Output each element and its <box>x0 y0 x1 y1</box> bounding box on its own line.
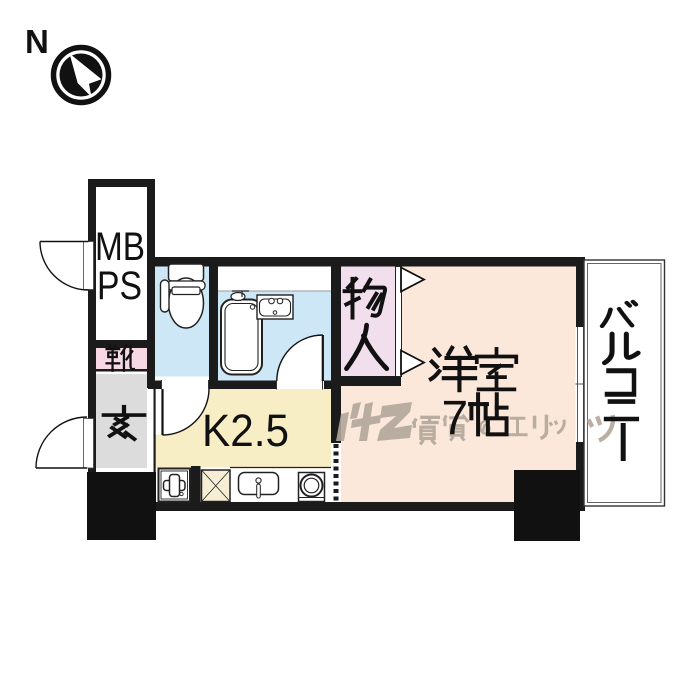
svg-text:N: N <box>25 23 49 60</box>
svg-text:MB: MB <box>95 225 145 269</box>
svg-text:7: 7 <box>442 392 469 445</box>
svg-text:K2.5: K2.5 <box>202 405 289 456</box>
svg-text:PS: PS <box>97 264 142 308</box>
